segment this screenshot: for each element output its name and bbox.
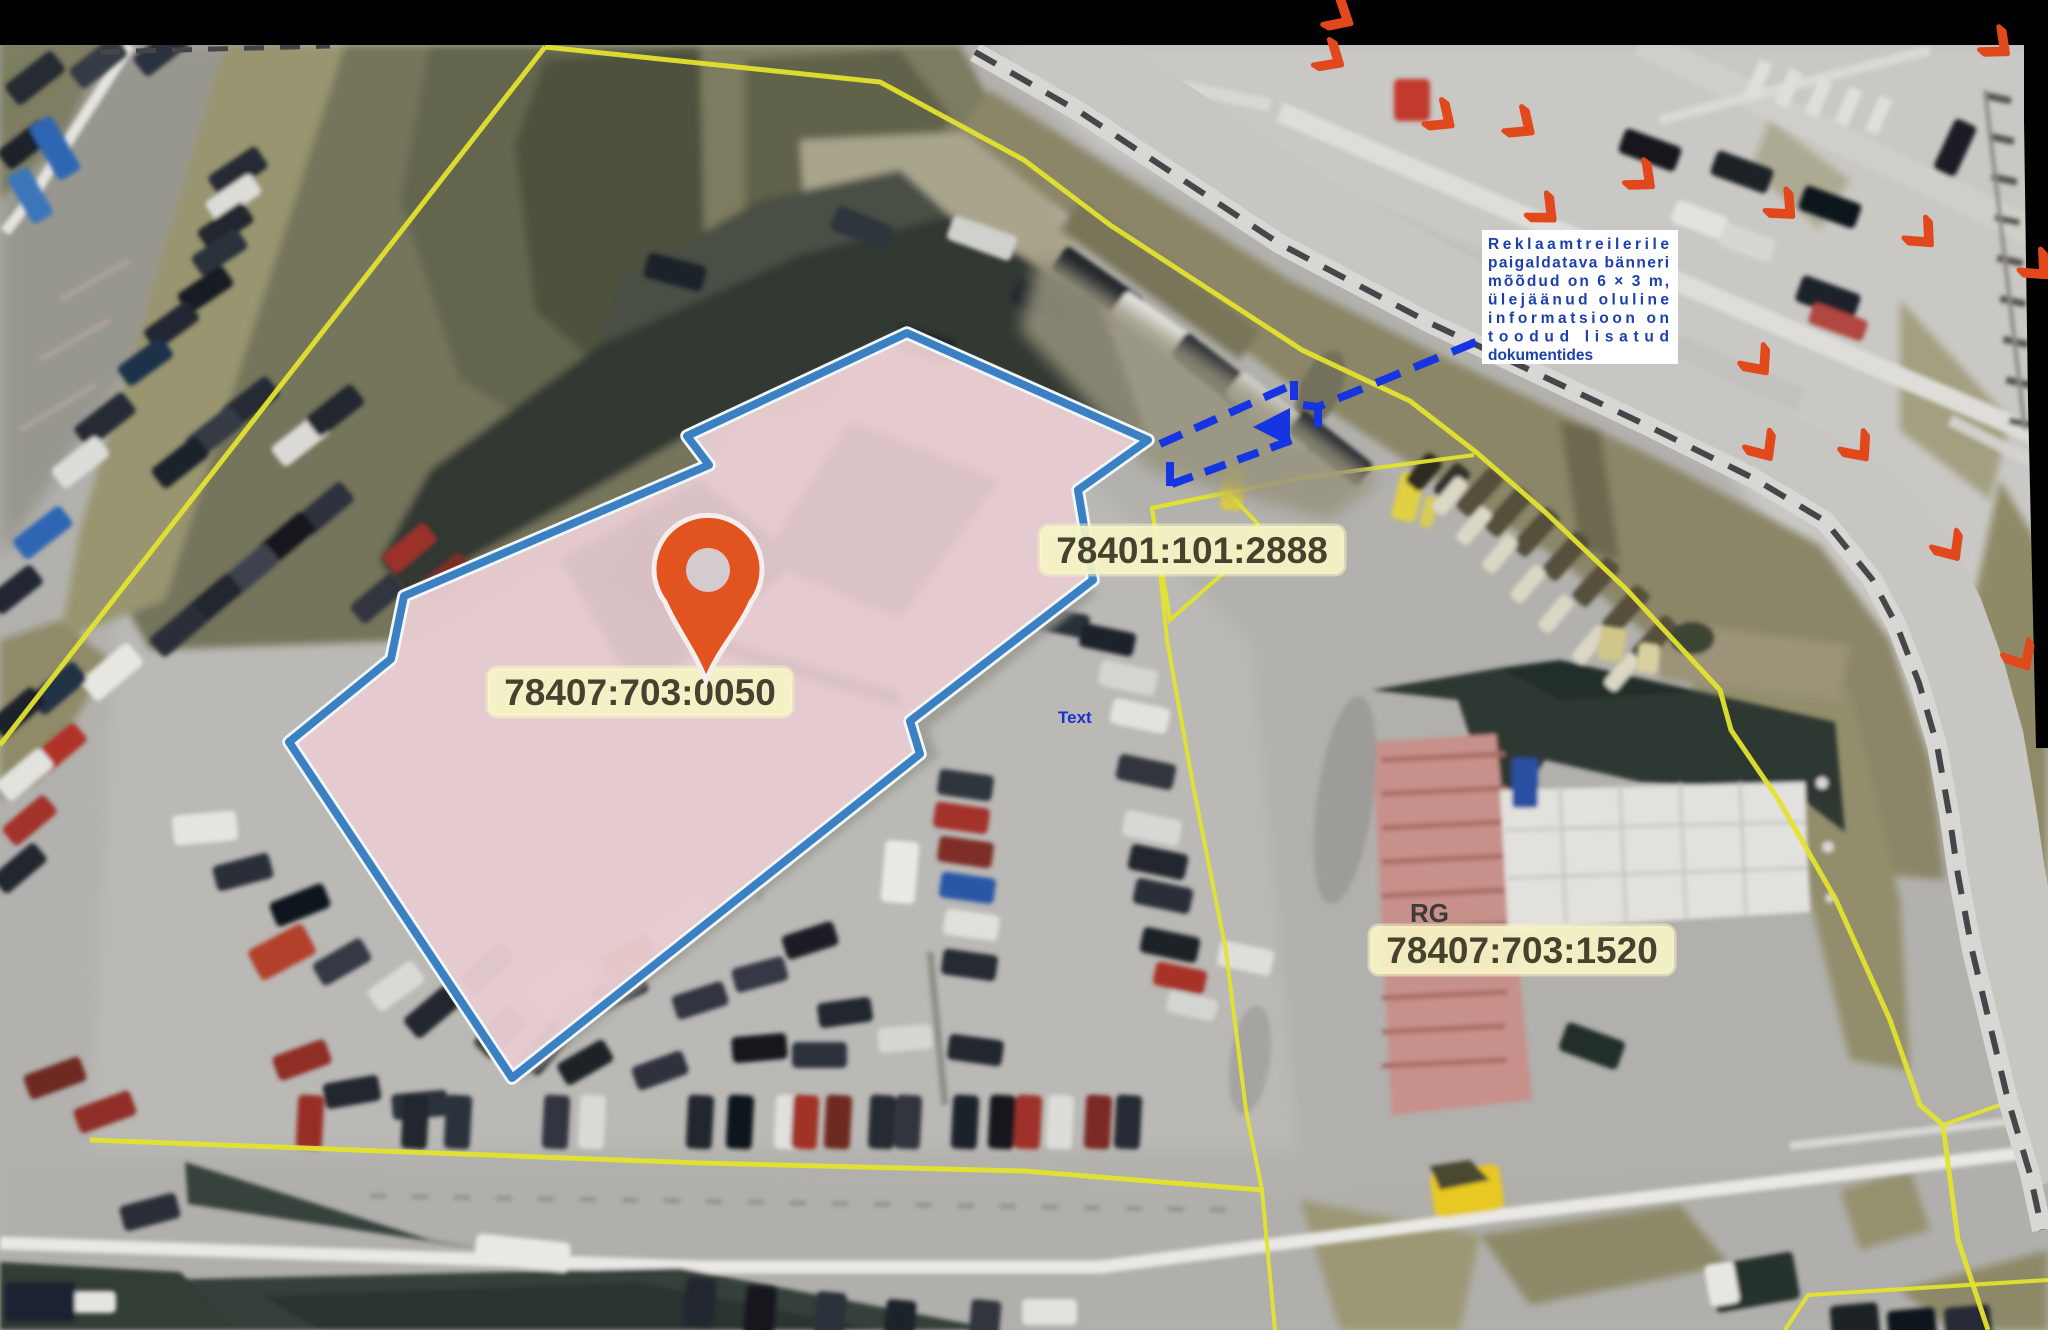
- svg-text:RG: RG: [1410, 898, 1449, 928]
- svg-text:78407:703:0050: 78407:703:0050: [504, 672, 776, 713]
- svg-text:78407:703:1520: 78407:703:1520: [1386, 930, 1658, 971]
- svg-text:paigaldatava bänneri: paigaldatava bänneri: [1488, 255, 1669, 272]
- svg-text:ülejäänud oluline: ülejäänud oluline: [1488, 292, 1669, 309]
- svg-text:78401:101:2888: 78401:101:2888: [1056, 530, 1328, 571]
- svg-text:mõõdud on 6 × 3 m,: mõõdud on 6 × 3 m,: [1488, 273, 1669, 290]
- svg-text:Text: Text: [1058, 708, 1092, 727]
- svg-text:dokumentides: dokumentides: [1488, 347, 1593, 364]
